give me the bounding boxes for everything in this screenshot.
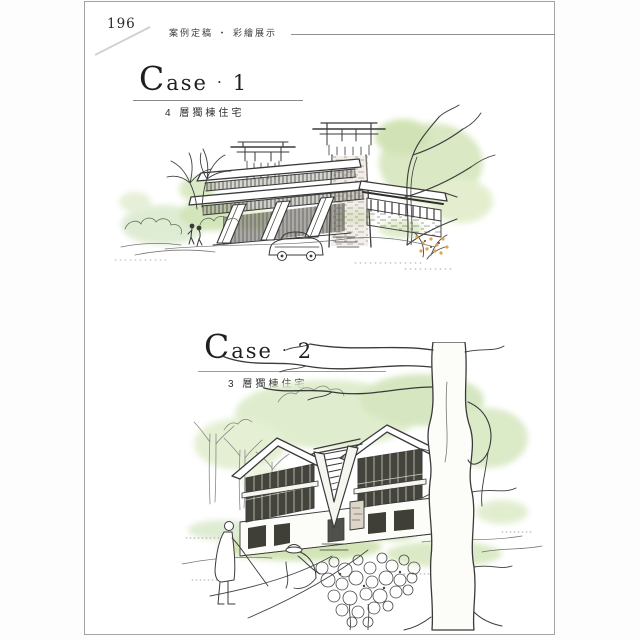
section-title: 案例定稿 ・ 彩繪展示 <box>169 26 277 39</box>
case-1-title-rest: ase <box>166 71 208 95</box>
case-1-title-separator: · <box>217 73 224 91</box>
case-1-title-number: 1 <box>233 71 248 95</box>
page: 196 案例定稿 ・ 彩繪展示 Case · 1 4 層獨棟住宅 <box>84 1 555 635</box>
case-2-illustration <box>182 342 552 634</box>
header-rule <box>291 34 555 35</box>
scanned-book-spread: 196 案例定稿 ・ 彩繪展示 Case · 1 4 層獨棟住宅 <box>0 0 640 640</box>
page-number: 196 <box>107 16 136 32</box>
case-2-bush-sketch <box>316 553 420 630</box>
case-1-illustration <box>105 97 545 332</box>
case-1-title: Case · 1 <box>139 62 248 95</box>
case-1-title-initial: C <box>139 62 166 95</box>
